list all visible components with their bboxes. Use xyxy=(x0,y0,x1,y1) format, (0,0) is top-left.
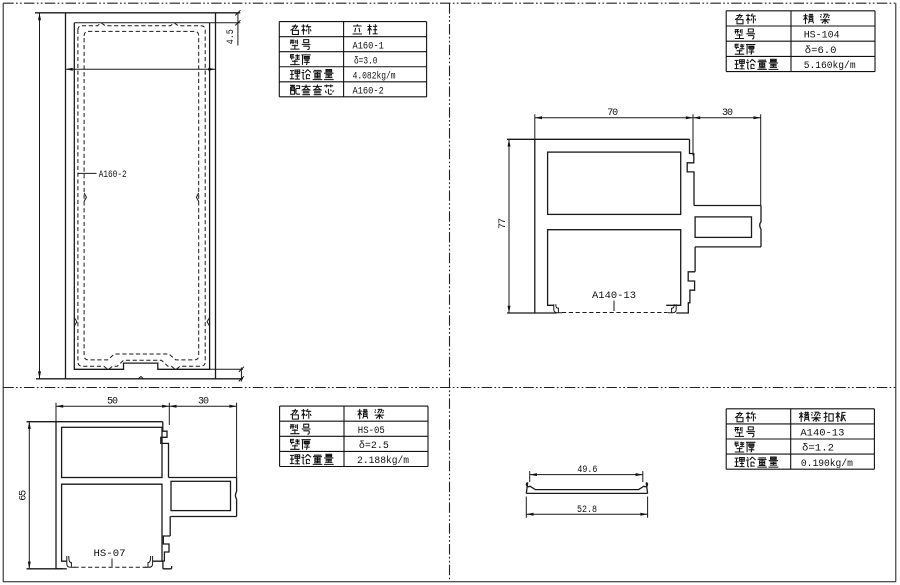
svg-text:A140-13: A140-13 xyxy=(800,429,844,440)
svg-text:δ=1.2: δ=1.2 xyxy=(802,443,834,455)
svg-text:4.5: 4.5 xyxy=(226,29,237,44)
svg-text:δ=3.0: δ=3.0 xyxy=(354,55,377,67)
svg-text:65: 65 xyxy=(19,490,30,501)
svg-text:A160-2: A160-2 xyxy=(99,170,127,181)
svg-text:2.188kg/m: 2.188kg/m xyxy=(357,455,409,467)
svg-text:0.190kg/m: 0.190kg/m xyxy=(801,458,853,470)
svg-text:52.8: 52.8 xyxy=(577,505,597,516)
svg-text:A160-2: A160-2 xyxy=(353,86,384,97)
svg-text:A160-1: A160-1 xyxy=(353,41,384,52)
svg-text:HS-05: HS-05 xyxy=(358,426,385,437)
svg-text:δ=2.5: δ=2.5 xyxy=(359,440,389,452)
svg-text:30: 30 xyxy=(198,397,209,408)
svg-text:50: 50 xyxy=(107,397,118,408)
svg-text:30: 30 xyxy=(722,108,733,119)
svg-text:HS-104: HS-104 xyxy=(804,31,840,42)
svg-text:77: 77 xyxy=(498,218,509,229)
svg-text:δ=6.0: δ=6.0 xyxy=(805,45,837,57)
svg-text:HS-07: HS-07 xyxy=(94,549,126,560)
svg-text:49.6: 49.6 xyxy=(577,465,597,476)
svg-text:5.160kg/m: 5.160kg/m xyxy=(804,60,856,72)
svg-text:4.082kg/m: 4.082kg/m xyxy=(353,70,396,82)
svg-text:70: 70 xyxy=(607,108,618,119)
